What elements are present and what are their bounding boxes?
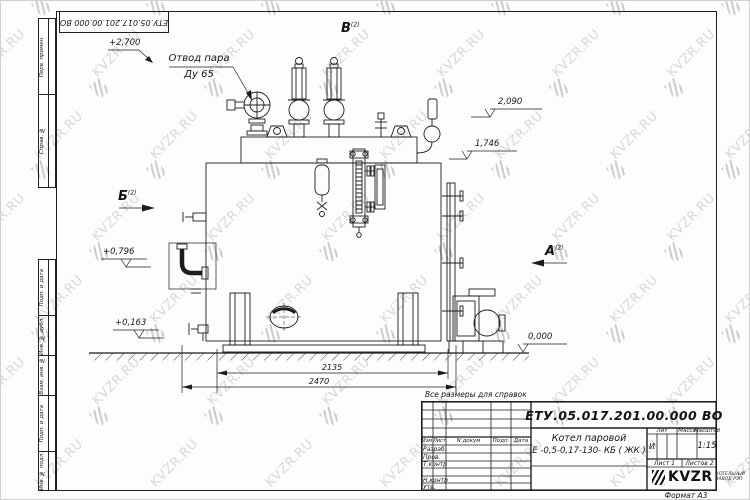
elevation-1746: 1,746 — [475, 139, 499, 149]
side-field-cell: Перв. примен. — [39, 19, 55, 95]
col-podp: Подп. — [491, 437, 511, 445]
elevation-2090: 2,090 — [498, 97, 522, 107]
sheet-cell: Лист 1 — [647, 459, 682, 467]
title-doc-number: ЕТУ.05.017.201.00.000 ВО — [531, 404, 717, 426]
elevation-0000: 0,000 — [528, 332, 552, 342]
sign-row-utv: Утв. — [423, 484, 436, 491]
side-field-cell: Подп. и дата — [39, 260, 55, 316]
side-field-label: Перв. примен. — [39, 36, 48, 77]
product-name-line2: Е -0,5-0,17-130- КБ ( ЖК ) — [531, 445, 647, 457]
side-field-label: Подп. и дата — [39, 269, 48, 306]
elevation-0163: +0,163 — [115, 318, 146, 328]
view-label-b: Б(2) — [118, 189, 136, 204]
col-izm: Изм — [421, 437, 433, 445]
elevation-2700: +2,700 — [109, 38, 140, 48]
side-field-label: Инв. № дубл. — [39, 317, 48, 355]
col-data: Дата — [511, 437, 531, 445]
reference-note: Все размеры для справок — [425, 390, 527, 399]
sign-row-tkontr: Т.контр — [423, 461, 447, 468]
side-field-label: Справ. № — [39, 127, 48, 154]
sign-row-prov: Пров. — [423, 454, 440, 461]
kvzr-logo: KVZR КОТЕЛЬНЫЙ ЗАВОД РЭП — [652, 469, 745, 485]
logo-subtitle: КОТЕЛЬНЫЙ ЗАВОД РЭП — [716, 472, 745, 482]
spring-icon — [652, 470, 665, 485]
steam-outlet-callout-line1: Отвод пара — [161, 53, 237, 64]
side-fields-bottom: Подп. и дата Инв. № дубл. Взам. инв. № П… — [38, 259, 56, 491]
elevation-0796: +0,796 — [103, 247, 134, 257]
lit-value: И — [647, 437, 657, 455]
side-field-cell: Подп. и дата — [39, 396, 55, 452]
scale-value: 1:15 — [697, 437, 717, 455]
col-ndoc: N докум — [446, 437, 491, 445]
sign-row-razrab: Разраб. — [423, 446, 447, 453]
steam-outlet-callout-line2: Ду 65 — [161, 69, 237, 80]
product-name-line1: Котел паровой — [531, 431, 647, 445]
dimension-2470: 2470 — [294, 377, 344, 386]
doc-number-top-box: ЕТУ.05.017.201.00.000 ВО — [59, 11, 169, 33]
side-field-cell: Инв. № дубл. — [39, 316, 55, 356]
side-field-cell: Взам. инв. № — [39, 356, 55, 396]
dimension-2135: 2135 — [307, 363, 357, 372]
side-field-label: Подп. и дата — [39, 405, 48, 442]
drawing-sheet: KVZR.RUKVZR.RUKVZR.RUKVZR.RUKVZR.RUKVZR.… — [0, 0, 750, 500]
title-block: ЕТУ.05.017.201.00.000 ВО Котел паровой Е… — [421, 401, 717, 491]
masshtab-label: Масштаб — [697, 428, 717, 434]
sign-row-nkontr: Н.контр — [423, 477, 448, 484]
side-field-label: Взам. инв. № — [39, 357, 48, 395]
side-field-cell: Справ. № — [39, 95, 55, 187]
sheets-cell: Листов 2 — [682, 459, 717, 467]
view-label-v: В(2) — [341, 21, 359, 36]
logo-text: KVZR — [668, 469, 713, 485]
lit-label: Лит — [647, 428, 677, 434]
format-label: Формат А3 — [651, 491, 721, 500]
col-list: Лист — [433, 437, 446, 445]
view-label-a: А(2) — [545, 244, 564, 259]
side-field-label: Инв. № подл. — [39, 452, 48, 490]
doc-number-inverted: ЕТУ.05.017.201.00.000 ВО — [60, 18, 168, 27]
side-field-cell: Инв. № подл. — [39, 452, 55, 490]
side-fields-top: Перв. примен. Справ. № — [38, 18, 56, 188]
